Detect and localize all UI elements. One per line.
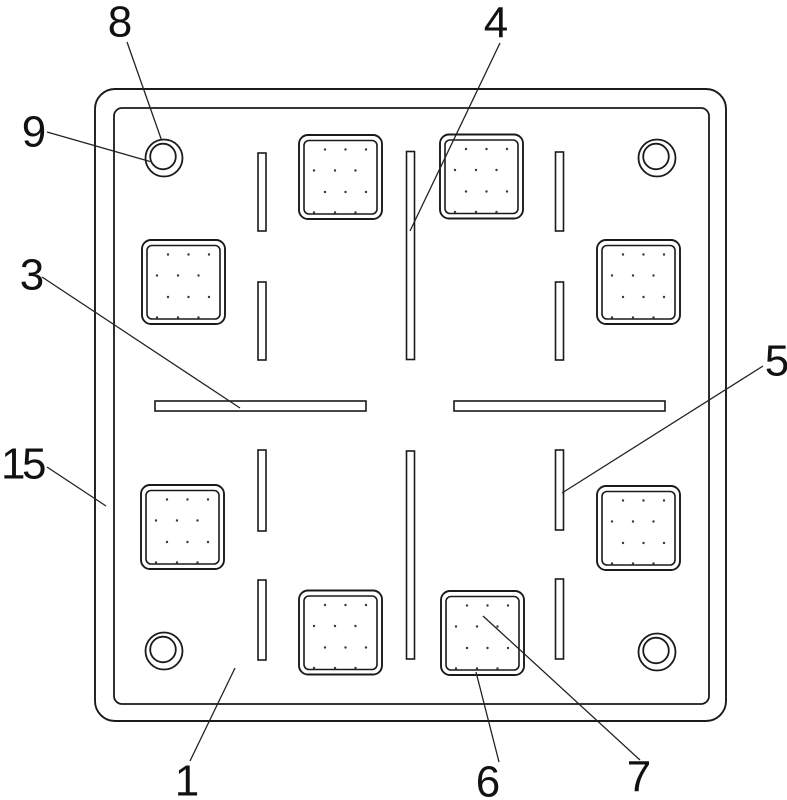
svg-text:15: 15 [1,440,45,489]
svg-text:6: 6 [476,758,500,800]
svg-text:7: 7 [627,753,651,800]
svg-text:9: 9 [22,108,46,157]
svg-text:1: 1 [175,757,199,800]
svg-text:4: 4 [484,0,508,48]
svg-text:3: 3 [20,251,44,300]
svg-text:5: 5 [765,337,787,386]
svg-text:8: 8 [108,0,132,47]
